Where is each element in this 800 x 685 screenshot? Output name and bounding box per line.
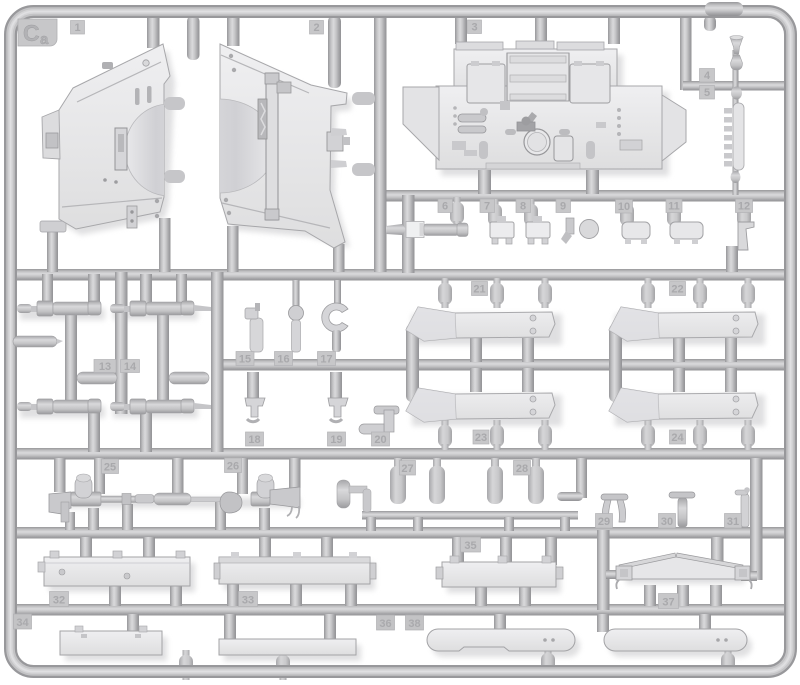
svg-text:30: 30: [661, 516, 673, 528]
svg-text:25: 25: [104, 462, 116, 474]
svg-text:21: 21: [473, 284, 485, 296]
svg-text:38: 38: [408, 618, 420, 630]
svg-text:17: 17: [320, 354, 332, 366]
svg-text:23: 23: [475, 432, 487, 444]
svg-text:37: 37: [662, 597, 674, 609]
svg-text:10: 10: [618, 201, 630, 213]
svg-text:11: 11: [668, 201, 680, 213]
svg-text:C: C: [23, 20, 40, 46]
svg-text:13: 13: [99, 361, 111, 373]
svg-text:18: 18: [248, 434, 260, 446]
svg-text:29: 29: [598, 516, 610, 528]
svg-text:36: 36: [379, 618, 391, 630]
svg-text:12: 12: [738, 201, 750, 213]
svg-text:4: 4: [704, 70, 711, 82]
svg-text:19: 19: [330, 434, 342, 446]
svg-text:20: 20: [374, 434, 386, 446]
svg-text:8: 8: [520, 201, 526, 213]
svg-text:14: 14: [124, 361, 137, 373]
svg-text:34: 34: [16, 617, 29, 629]
svg-text:35: 35: [464, 540, 476, 552]
svg-text:33: 33: [242, 595, 254, 607]
svg-text:5: 5: [704, 87, 710, 99]
svg-text:3: 3: [471, 22, 477, 34]
svg-text:9: 9: [560, 201, 566, 213]
svg-text:24: 24: [671, 432, 684, 444]
svg-text:28: 28: [516, 463, 528, 475]
svg-text:26: 26: [227, 461, 239, 473]
svg-text:15: 15: [239, 354, 251, 366]
svg-text:22: 22: [671, 284, 683, 296]
svg-text:7: 7: [484, 201, 490, 213]
svg-text:2: 2: [313, 22, 319, 34]
svg-text:27: 27: [401, 463, 413, 475]
svg-text:16: 16: [277, 354, 289, 366]
svg-text:32: 32: [53, 595, 65, 607]
svg-text:31: 31: [727, 516, 739, 528]
svg-text:6: 6: [442, 201, 448, 213]
svg-text:a: a: [40, 31, 49, 48]
svg-text:1: 1: [74, 22, 80, 34]
